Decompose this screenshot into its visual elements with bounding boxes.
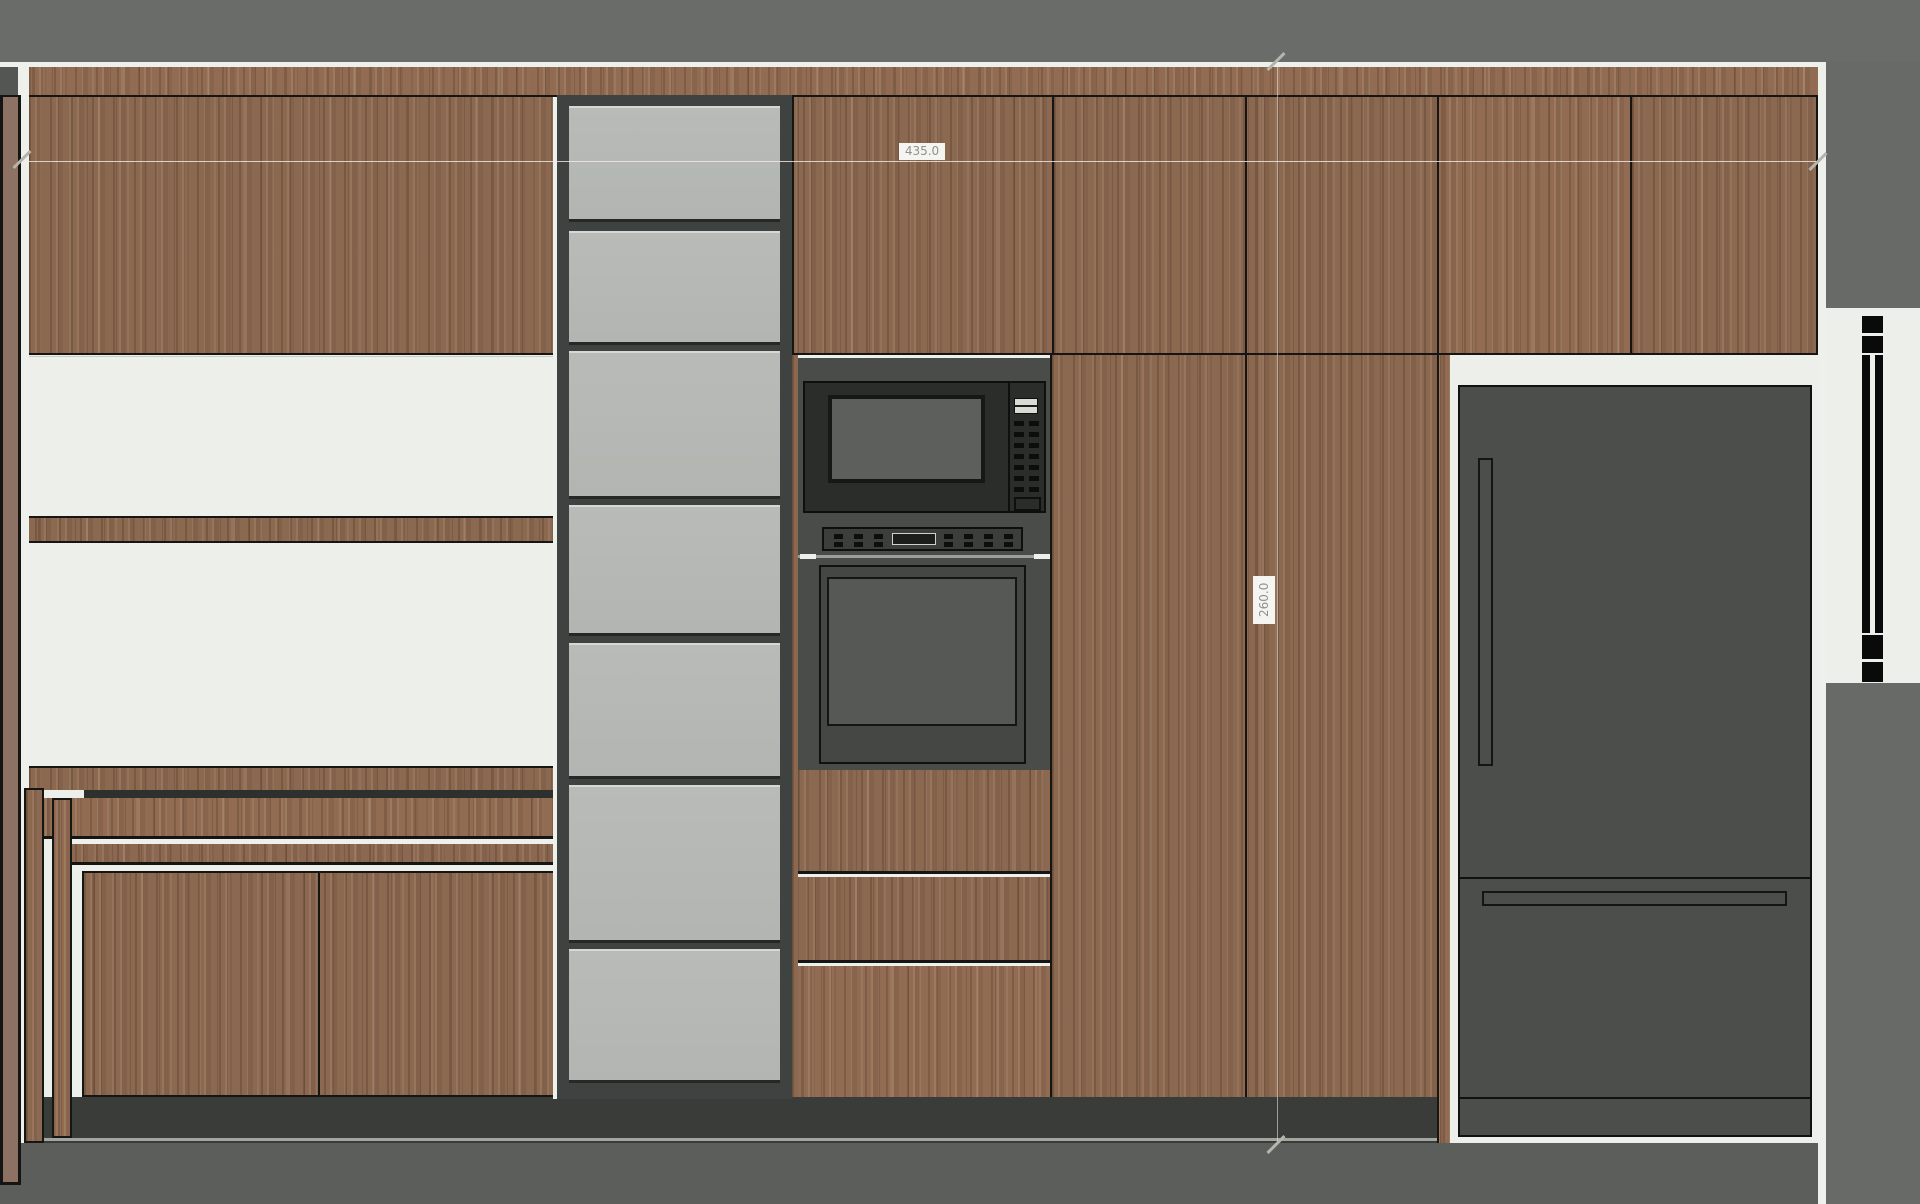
oven-trim-fleck-left — [800, 554, 816, 559]
fridge-door-handle[interactable] — [1478, 458, 1493, 766]
glass-panel[interactable] — [569, 231, 780, 345]
left-drawer-band[interactable] — [44, 798, 557, 836]
oven-door-window — [827, 577, 1017, 726]
elevation-canvas: 435.0 260.0 — [0, 0, 1920, 1204]
oven-buttons-right-bottom — [944, 542, 1016, 547]
section-marker-square-4 — [1862, 662, 1883, 682]
oven-buttons-left-bottom — [834, 542, 886, 547]
floor-band — [0, 1143, 1920, 1204]
microwave-keypad-left[interactable] — [1014, 421, 1024, 493]
oven-buttons-right-top — [944, 534, 1016, 539]
left-mid-wood-strip[interactable] — [29, 516, 557, 543]
glass-panel[interactable] — [569, 106, 780, 222]
oven-buttons-left-top — [834, 534, 886, 539]
section-marker-bar-left — [1862, 355, 1870, 633]
glass-cabinet-frame[interactable] — [557, 95, 792, 1099]
glass-panel[interactable] — [569, 949, 780, 1083]
right-wall-gap — [1818, 62, 1826, 1204]
pantry-door-2[interactable] — [1245, 355, 1437, 1097]
right-opening — [1826, 308, 1920, 683]
fridge-door-split-line — [1460, 877, 1810, 879]
right-return-panel-bottom — [1826, 683, 1920, 1204]
oven-control-panel[interactable] — [822, 527, 1023, 551]
soffit-filler-band[interactable] — [29, 67, 1818, 95]
freezer-lower-line — [1460, 1097, 1810, 1099]
upper-door-fridge-1[interactable] — [1437, 97, 1630, 353]
dim-label-width[interactable]: 435.0 — [899, 143, 945, 160]
oven-trim-fleck-right — [1034, 554, 1050, 559]
section-marker-square-3 — [1862, 635, 1883, 659]
microwave[interactable] — [803, 381, 1046, 513]
oven-drawer-1[interactable] — [798, 770, 1050, 871]
upper-door-pantry-2[interactable] — [1245, 97, 1437, 353]
oven-drawer-2[interactable] — [798, 877, 1050, 960]
section-marker-square-2 — [1862, 336, 1883, 353]
pantry-door-1[interactable] — [1052, 355, 1245, 1097]
glass-panel[interactable] — [569, 505, 780, 636]
dim-line-vertical — [1277, 67, 1278, 1143]
freezer-drawer-handle[interactable] — [1482, 891, 1787, 906]
island-post-outer[interactable] — [24, 788, 44, 1143]
counter-band[interactable] — [29, 766, 557, 790]
left-wall-panel-edge — [0, 97, 21, 1185]
oven-trim-line — [798, 555, 1050, 558]
right-return-panel-top — [1826, 62, 1920, 308]
microwave-panel-divider — [1008, 383, 1010, 511]
base-door-divider — [318, 871, 320, 1097]
oven-display — [892, 533, 936, 545]
left-rail-band[interactable] — [54, 844, 557, 862]
glass-panel[interactable] — [569, 785, 780, 943]
glass-panel[interactable] — [569, 643, 780, 779]
dim-label-height[interactable]: 260.0 — [1253, 576, 1275, 624]
refrigerator[interactable] — [1458, 385, 1812, 1137]
counter-shadow-line — [29, 790, 557, 798]
microwave-window — [828, 395, 985, 483]
island-post-inner[interactable] — [52, 798, 72, 1138]
upper-door-oven-column[interactable] — [792, 97, 1052, 353]
upper-door-left[interactable] — [29, 97, 557, 353]
section-marker-bar-right — [1875, 355, 1883, 633]
microwave-open-button[interactable] — [1014, 497, 1041, 511]
top-soffit-band — [0, 0, 1920, 62]
section-marker-square-1 — [1862, 316, 1883, 333]
white-panel-upper[interactable] — [29, 356, 557, 516]
plinth-floor-hairline — [29, 1138, 1437, 1141]
oven-door[interactable] — [819, 565, 1026, 764]
glass-panel[interactable] — [569, 351, 780, 499]
microwave-keypad-right[interactable] — [1029, 421, 1039, 493]
oven-drawer-3[interactable] — [798, 966, 1050, 1097]
plinth-strip — [29, 1097, 1437, 1143]
fridge-side-panel[interactable] — [1437, 355, 1450, 1143]
dim-line-horizontal — [20, 161, 1820, 162]
upper-door-fridge-2[interactable] — [1630, 97, 1818, 353]
microwave-display — [1014, 398, 1038, 414]
upper-door-pantry-1[interactable] — [1052, 97, 1245, 353]
white-panel-lower[interactable] — [29, 543, 557, 766]
left-wall-corner-block — [0, 67, 18, 95]
